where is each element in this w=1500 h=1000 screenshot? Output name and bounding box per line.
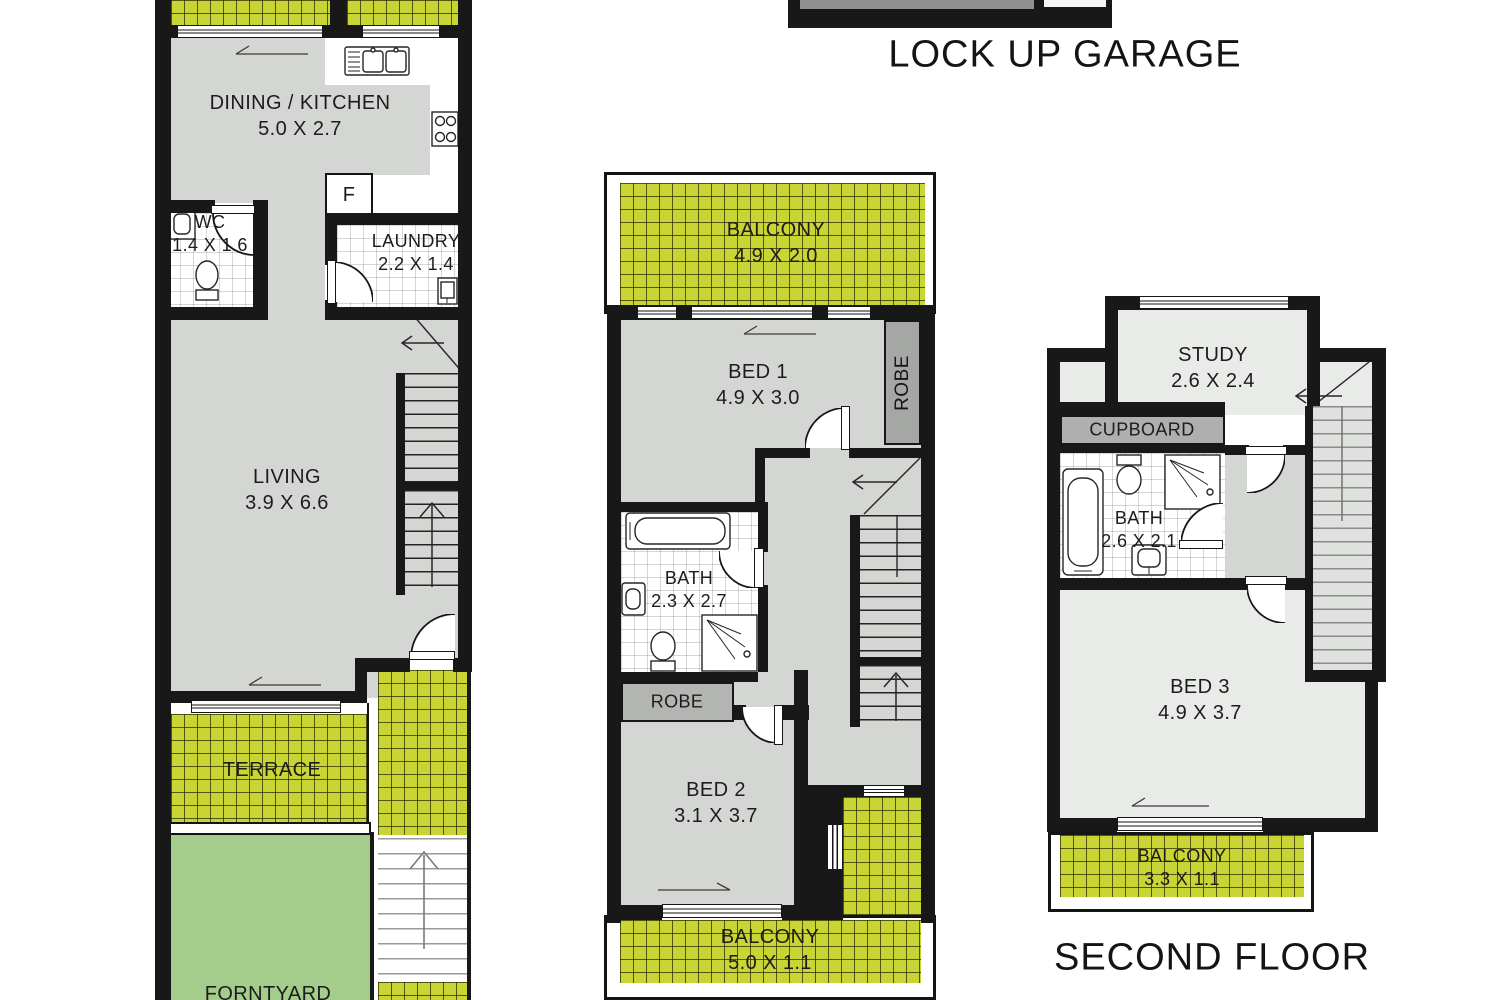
shower-icon <box>701 614 758 672</box>
bed3-door-leaf <box>1245 576 1287 585</box>
corridor-floor <box>265 175 325 320</box>
stair-direction-arrow-left <box>394 333 448 353</box>
window <box>662 904 782 918</box>
wall <box>1372 348 1386 682</box>
wall <box>1060 402 1225 415</box>
bath-door-leaf <box>754 548 764 588</box>
hall-door <box>1247 455 1285 493</box>
wc-toilet-icon <box>193 258 221 302</box>
wall <box>396 373 405 490</box>
stair-direction-arrow-up <box>412 497 452 591</box>
wall <box>1047 348 1060 832</box>
stairs-up-flight1 <box>405 373 458 482</box>
wall <box>253 213 268 307</box>
wall <box>621 502 758 512</box>
wall <box>782 905 843 920</box>
floor-plan-page: DINING / KITCHEN5.0 X 2.7 WC1.4 X 1.6 LA… <box>0 0 1500 1000</box>
wall <box>155 0 171 1000</box>
wall <box>1060 445 1225 453</box>
room-label-study: STUDY2.6 X 2.4 <box>1171 342 1255 394</box>
wall <box>325 213 458 225</box>
wall <box>253 200 268 213</box>
stair-center-line <box>895 515 899 577</box>
room-label-balcony2: BALCONY5.0 X 1.1 <box>721 924 819 976</box>
wall <box>850 657 921 665</box>
wall <box>325 307 472 320</box>
window <box>177 25 323 38</box>
balcony-tile-column <box>843 797 921 920</box>
wall <box>1285 578 1307 590</box>
wall <box>1307 296 1320 406</box>
garage-door <box>800 0 1034 9</box>
fridge-label: F <box>343 182 356 208</box>
window <box>691 306 813 319</box>
wall <box>1047 818 1117 832</box>
ceiling-mark <box>222 44 312 58</box>
room-label-laundry: LAUNDRY2.2 X 1.4 <box>372 230 461 276</box>
boundary-line <box>370 832 374 1000</box>
room-label-dining: DINING / KITCHEN5.0 X 2.7 <box>210 90 391 142</box>
garage-title: LOCK UP GARAGE <box>888 34 1241 77</box>
room-label-robe2: ROBE <box>651 691 704 714</box>
room-label-wc: WC1.4 X 1.6 <box>172 211 248 257</box>
terrace-door-leaf <box>409 651 455 660</box>
bathtub-icon <box>1062 468 1104 576</box>
garage-interior <box>1044 0 1106 7</box>
wall <box>607 305 621 923</box>
wall <box>794 670 808 788</box>
wall <box>365 658 410 672</box>
bath2-door <box>1181 503 1223 545</box>
shower-icon <box>1164 454 1221 510</box>
wall <box>396 490 405 595</box>
ceiling-mark <box>1118 796 1213 810</box>
wall <box>849 448 922 458</box>
room-label-bed2: BED 23.1 X 3.7 <box>674 777 758 829</box>
wall <box>155 307 268 320</box>
window <box>827 824 843 870</box>
side-tile-bottom <box>378 982 467 1000</box>
window <box>362 25 440 38</box>
window <box>191 700 341 713</box>
wall <box>325 225 337 265</box>
entry-stairs-arrow-up <box>403 845 445 953</box>
basin-icon <box>621 582 646 616</box>
side-tile-column <box>378 670 467 835</box>
room-label-living: LIVING3.9 X 6.6 <box>245 464 329 516</box>
toilet-icon <box>1114 454 1144 496</box>
window <box>827 306 871 319</box>
laundry-door <box>333 262 373 302</box>
stove-icon <box>431 111 459 147</box>
ceiling-mark <box>652 880 736 894</box>
wall <box>607 672 758 682</box>
boundary-line <box>467 672 471 1000</box>
wall <box>1365 682 1378 832</box>
bed2-door <box>742 707 778 743</box>
kitchen-sink-icon <box>344 46 410 76</box>
room-label-balcony1: BALCONY4.9 X 2.0 <box>727 217 825 269</box>
wall <box>1047 578 1247 590</box>
window <box>863 785 905 797</box>
bathtub-icon <box>625 512 731 550</box>
stair-center-line <box>1340 406 1344 521</box>
bed3-door <box>1247 585 1285 623</box>
balcony-tile-top-left <box>171 0 330 25</box>
floor-title: SECOND FLOOR <box>1054 937 1370 980</box>
room-label-frontyard: FORNTYARD <box>205 981 332 1000</box>
room-label-balcony3: BALCONY3.3 X 1.1 <box>1138 845 1227 891</box>
wall <box>921 305 935 923</box>
room-label-cupboard: CUPBOARD <box>1089 419 1194 442</box>
window <box>1139 296 1289 309</box>
laundry-tub-icon <box>437 277 458 305</box>
bed1-door-leaf <box>841 406 850 450</box>
bed2-door-leaf <box>774 705 783 745</box>
wall <box>758 585 768 672</box>
stair-direction-arrow-left <box>845 472 901 492</box>
wall <box>453 658 472 672</box>
balcony-tile-top-right <box>347 0 458 25</box>
wall <box>1305 670 1386 682</box>
room-label-terrace: TERRACE <box>223 757 321 783</box>
wall <box>850 665 860 727</box>
room-label-bed1: BED 14.9 X 3.0 <box>716 359 800 411</box>
frontyard <box>171 835 370 1000</box>
wall <box>396 482 458 490</box>
bath2-door-leaf <box>1179 540 1223 549</box>
wall <box>850 515 860 657</box>
laundry-door-leaf <box>327 260 336 304</box>
stairs-down-flight <box>860 515 921 657</box>
ceiling-mark <box>730 324 820 338</box>
toilet-icon <box>647 629 679 672</box>
wall <box>458 0 472 672</box>
wall <box>607 905 662 920</box>
ceiling-mark <box>235 675 325 689</box>
window <box>637 306 677 319</box>
bed1-door <box>805 408 845 448</box>
terrace-balustrade <box>165 822 371 835</box>
hall-door-leaf <box>1245 446 1287 455</box>
room-label-bed3: BED 34.9 X 3.7 <box>1158 674 1242 726</box>
room-label-bath2: BATH2.6 X 2.1 <box>1101 507 1177 553</box>
wall <box>1263 818 1378 832</box>
room-label-bath1: BATH2.3 X 2.7 <box>651 567 727 613</box>
terrace-balustrade-side <box>367 703 378 822</box>
room-label-robe1: ROBE <box>892 355 914 411</box>
wall <box>758 502 768 552</box>
stair-direction-arrow-up <box>878 667 914 725</box>
window <box>1117 817 1263 831</box>
